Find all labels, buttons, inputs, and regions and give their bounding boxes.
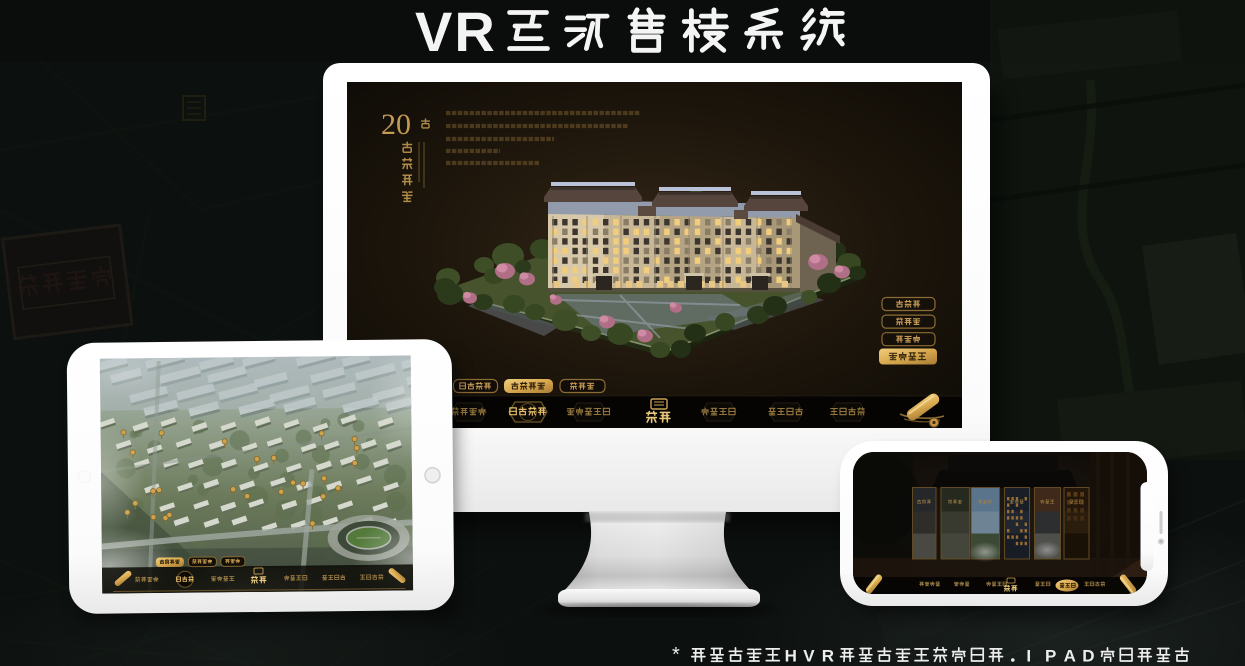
svg-text:VR: VR <box>415 0 497 63</box>
svg-text:R: R <box>822 647 834 666</box>
svg-text:*: * <box>672 644 680 666</box>
svg-text:V: V <box>803 647 815 666</box>
svg-text:P: P <box>1045 647 1056 666</box>
svg-text:D: D <box>1082 647 1094 666</box>
svg-text:H: H <box>785 647 797 666</box>
svg-text:I: I <box>1026 647 1031 666</box>
svg-text:A: A <box>1064 647 1076 666</box>
svg-text:20: 20 <box>381 108 411 141</box>
